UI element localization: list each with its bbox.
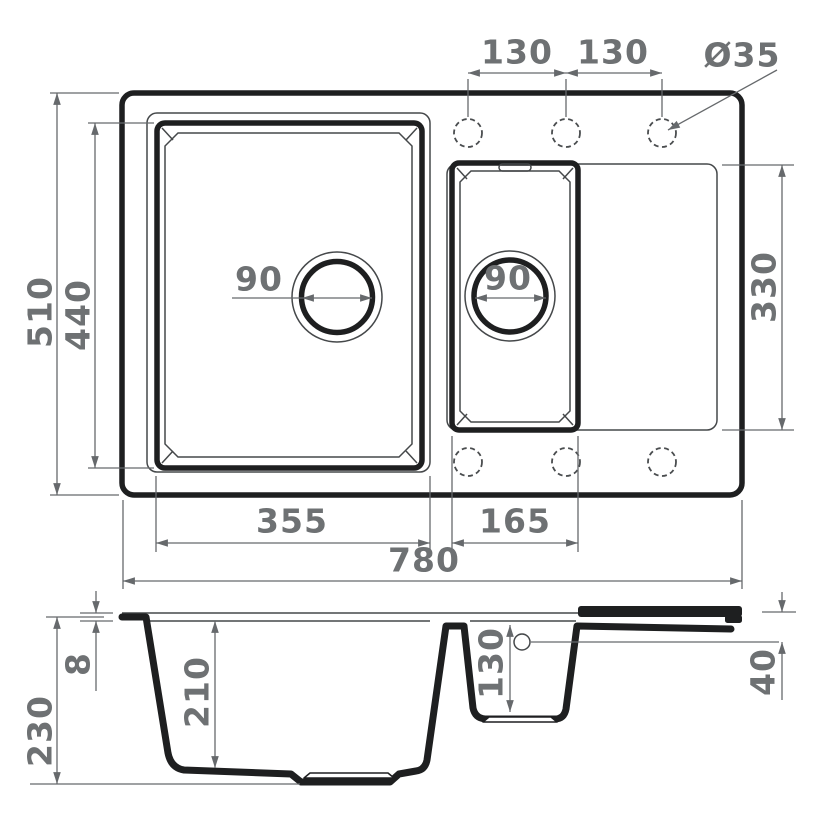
- tap-hole-bottom-2: [552, 448, 580, 476]
- main-drain-inner-circle: [302, 262, 373, 333]
- section-view: 230 8 210 130 40: [21, 591, 797, 784]
- dim-half-drain: 90: [475, 259, 546, 299]
- top-view: 130 130 Ø35 510 440 330: [21, 33, 795, 590]
- dim-tap-spacing: 130 130: [468, 33, 662, 118]
- dim-label-tap-spacing-right: 130: [577, 33, 649, 72]
- main-bowl: [147, 113, 430, 472]
- dim-label-drainboard-edge-height: 40: [744, 648, 783, 696]
- tap-hole-top-1: [454, 119, 482, 147]
- main-drain-outer-circle: [292, 252, 382, 342]
- main-bowl-rim-line: [147, 113, 430, 472]
- tap-hole-bottom-3: [648, 448, 676, 476]
- overflow-hole: [514, 634, 530, 650]
- section-drainboard-edge-tip: [725, 615, 742, 623]
- dim-half-bowl-depth-section: 130: [472, 625, 511, 712]
- section-drainboard-top-bar: [578, 606, 742, 617]
- main-drain: [292, 252, 382, 342]
- tap-hole-bottom-1: [454, 448, 482, 476]
- tap-hole-top-3: [648, 119, 676, 147]
- dim-label-tap-diameter: Ø35: [704, 36, 781, 75]
- drawing-svg: 130 130 Ø35 510 440 330: [0, 0, 819, 818]
- dim-drainboard-depth: 330: [722, 165, 794, 430]
- dim-label-main-bowl-depth-section: 210: [178, 656, 217, 728]
- dim-label-tap-spacing-left: 130: [481, 33, 553, 72]
- dim-tap-diameter: Ø35: [668, 36, 780, 131]
- dim-label-half-drain: 90: [484, 259, 532, 298]
- dim-label-main-bowl-depth: 440: [59, 279, 98, 351]
- main-bowl-corner-bevels: [162, 128, 417, 463]
- dim-label-main-drain: 90: [235, 260, 283, 299]
- dim-drainboard-edge-height: 40: [744, 592, 797, 700]
- sink-outline: [122, 93, 742, 495]
- dim-label-overall-height: 230: [21, 695, 60, 767]
- main-drain-fitting: [304, 773, 394, 778]
- dim-label-overall-width: 780: [388, 541, 460, 580]
- dim-label-rim-thickness: 8: [59, 652, 98, 676]
- dim-rim-thickness: 8: [59, 591, 114, 691]
- dim-label-main-bowl-width: 355: [256, 502, 328, 541]
- dim-label-half-bowl-depth-section: 130: [472, 627, 511, 699]
- dim-main-bowl-depth-section: 210: [178, 621, 217, 768]
- dim-label-overall-depth: 510: [21, 276, 60, 348]
- dim-overall-width: 780: [123, 500, 742, 589]
- dim-label-half-bowl-width: 165: [479, 502, 551, 541]
- dim-label-drainboard-depth: 330: [745, 251, 784, 323]
- dim-main-bowl-depth: 440: [59, 123, 155, 468]
- tap-hole-top-2: [552, 119, 580, 147]
- half-drain-fitting: [483, 717, 557, 722]
- sink-technical-drawing: 130 130 Ø35 510 440 330: [0, 0, 819, 818]
